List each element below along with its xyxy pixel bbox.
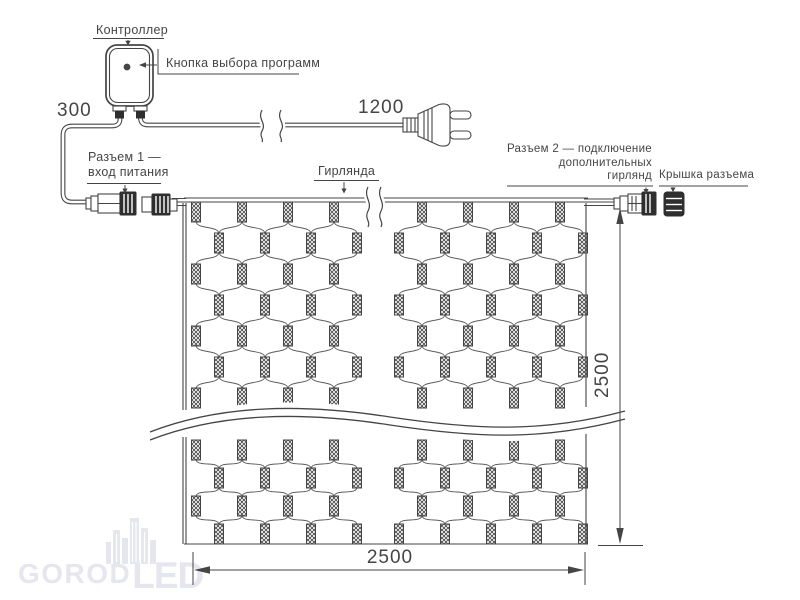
led-bulb [395, 524, 404, 544]
led-bulb [533, 468, 542, 488]
led-bulb [418, 388, 427, 408]
led-bulb [464, 440, 473, 460]
led-bulb [487, 357, 496, 377]
led-bulb [556, 264, 565, 284]
led-bulb [464, 496, 473, 516]
led-bulb [418, 496, 427, 516]
led-bulb [238, 264, 247, 284]
net-break-wave [150, 408, 625, 440]
led-bulb [441, 468, 450, 488]
led-bulb [192, 264, 201, 284]
led-bulb [487, 468, 496, 488]
connector2-label: Разъем 2 — подключение дополнительных ги… [505, 143, 652, 184]
led-bulb [238, 440, 247, 460]
led-bulb [284, 440, 293, 460]
led-bulb [215, 295, 224, 315]
net-break-squiggle [367, 187, 383, 227]
led-bulb [464, 264, 473, 284]
connector1-label-line2: вход питания [88, 165, 169, 180]
led-bulb [533, 357, 542, 377]
controller-pointer [93, 39, 164, 46]
led-bulb [464, 202, 473, 222]
led-bulb [353, 468, 362, 488]
led-bulb [307, 295, 316, 315]
led-bulb [284, 264, 293, 284]
led-bulb [556, 388, 565, 408]
led-bulb [192, 440, 201, 460]
led-bulb [284, 496, 293, 516]
led-bulb [261, 524, 270, 544]
led-bulb [487, 233, 496, 253]
led-bulb [579, 524, 588, 544]
led-bulb [353, 524, 362, 544]
led-bulb [464, 326, 473, 346]
led-bulb [441, 524, 450, 544]
led-bulb [192, 496, 201, 516]
led-bulb [556, 202, 565, 222]
led-bulb [261, 357, 270, 377]
led-bulb [307, 357, 316, 377]
power-plug [403, 104, 471, 146]
led-bulb [353, 233, 362, 253]
led-bulb [556, 440, 565, 460]
led-bulb [510, 264, 519, 284]
led-bulb [533, 295, 542, 315]
connector2-pointer [507, 186, 653, 194]
led-bulb [192, 202, 201, 222]
led-bulb [487, 295, 496, 315]
led-bulb [464, 388, 473, 408]
led-bulb [330, 496, 339, 516]
led-bulb [353, 295, 362, 315]
plug-prong [450, 131, 471, 139]
led-bulb [441, 295, 450, 315]
led-bulb [579, 233, 588, 253]
led-bulb [395, 233, 404, 253]
led-bulb [579, 295, 588, 315]
cap-pointer [659, 186, 748, 192]
cable-gland [113, 106, 147, 118]
led-bulb [215, 468, 224, 488]
led-bulb [533, 233, 542, 253]
connector-1 [86, 192, 177, 215]
led-bulb [533, 524, 542, 544]
led-bulb [261, 233, 270, 253]
led-bulb [261, 295, 270, 315]
plug-prong [450, 111, 471, 119]
led-bulb [510, 326, 519, 346]
led-bulb [487, 524, 496, 544]
led-bulb [215, 524, 224, 544]
led-bulb [261, 468, 270, 488]
garland-net [192, 202, 588, 544]
led-bulb [330, 202, 339, 222]
dim-2500-bottom: 2500 [354, 547, 426, 569]
led-bulb [330, 440, 339, 460]
led-bulb [307, 468, 316, 488]
led-bulb [192, 326, 201, 346]
led-bulb [579, 357, 588, 377]
diagram-page: GOROD LED [0, 0, 800, 600]
led-bulb [579, 468, 588, 488]
connector2-label-line2: дополнительных [505, 157, 652, 171]
program-button-dot [124, 64, 131, 71]
led-bulb [418, 264, 427, 284]
led-bulb [353, 357, 362, 377]
led-bulb [215, 357, 224, 377]
controller-label: Контроллер [96, 23, 168, 38]
led-bulb [556, 326, 565, 346]
led-bulb [441, 357, 450, 377]
connector2-label-line1: Разъем 2 — подключение [505, 143, 652, 157]
connector2-label-line3: гирлянд [505, 170, 652, 184]
led-bulb [192, 388, 201, 408]
led-bulb [307, 524, 316, 544]
led-bulb [307, 233, 316, 253]
dim-300: 300 [57, 100, 92, 122]
dim-2500-right: 2500 [591, 352, 615, 398]
led-bulb [510, 440, 519, 460]
garland-diagram [0, 0, 800, 600]
controller-box [106, 45, 153, 118]
led-bulb [238, 326, 247, 346]
led-bulb [330, 326, 339, 346]
led-bulb [510, 496, 519, 516]
led-bulb [395, 468, 404, 488]
garland-label: Гирлянда [318, 164, 375, 179]
connector-cap [664, 192, 684, 216]
led-bulb [556, 496, 565, 516]
led-bulb [284, 202, 293, 222]
led-bulb [238, 202, 247, 222]
led-bulb [510, 388, 519, 408]
led-bulb [215, 233, 224, 253]
led-bulb [418, 202, 427, 222]
led-bulb [284, 326, 293, 346]
led-bulb [395, 295, 404, 315]
led-bulb [418, 326, 427, 346]
led-bulb [441, 233, 450, 253]
led-bulb [238, 496, 247, 516]
connector1-label-line1: Разъем 1 — [88, 150, 169, 165]
led-bulb [510, 202, 519, 222]
led-bulb [418, 440, 427, 460]
led-bulb [330, 264, 339, 284]
led-bulb [395, 357, 404, 377]
dim-1200: 1200 [358, 97, 404, 119]
program-button-label: Кнопка выбора программ [166, 56, 320, 71]
cap-label: Крышка разъема [659, 169, 754, 183]
connector1-label: Разъем 1 — вход питания [88, 150, 169, 180]
